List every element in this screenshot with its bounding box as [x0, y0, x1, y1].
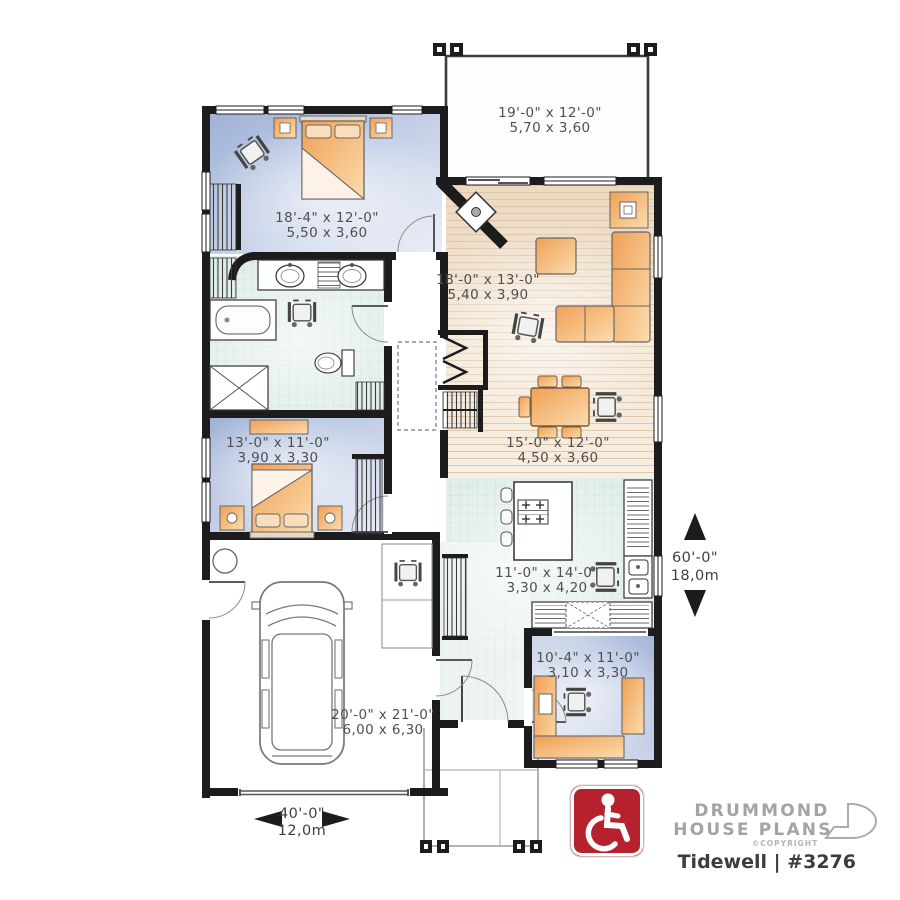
landing-steps [382, 544, 432, 648]
patio-columns [433, 43, 657, 56]
patio-dims-metric: 5,70 x 3,60 [509, 120, 590, 136]
office-dims-metric: 3,10 x 3,30 [547, 665, 628, 681]
master-bedroom-dims-metric: 5,50 x 3,60 [286, 225, 367, 241]
depth-ft-label: 60'-0" [672, 550, 718, 566]
brand-copyright: ©COPYRIGHT [752, 839, 818, 848]
master-closet-icon [210, 184, 236, 250]
floor-plan: 18'-4" x 12'-0" 5,50 x 3,60 [0, 0, 900, 900]
bedroom2-dims-imperial: 13'-0" x 11'-0" [226, 435, 330, 451]
master-bedroom-dims-imperial: 18'-4" x 12'-0" [275, 210, 379, 226]
sink-icon [338, 265, 366, 287]
patio-dims-imperial: 19'-0" x 12'-0" [498, 105, 602, 121]
bedroom2-dims-metric: 3,90 x 3,30 [237, 450, 318, 466]
water-heater-icon [213, 549, 237, 573]
floor-plan-canvas: 18'-4" x 12'-0" 5,50 x 3,60 [0, 0, 900, 900]
arrow-up-icon [684, 513, 706, 540]
bed-icon [300, 116, 366, 199]
plan-name-label: Tidewell | #3276 [678, 851, 856, 873]
dining-dims-metric: 4,50 x 3,60 [517, 450, 598, 466]
kitchen-dims-metric: 3,30 x 4,20 [506, 580, 587, 596]
linen-cabinet-icon [210, 258, 236, 298]
accessibility-badge [570, 785, 644, 857]
van-icon [252, 582, 352, 764]
depth-m-label: 18,0m [671, 568, 719, 584]
office-dims-imperial: 10'-4" x 11'-0" [536, 650, 640, 666]
kitchen-dims-imperial: 11'-0" x 14'-0" [495, 565, 599, 581]
bed-icon [250, 464, 314, 538]
stool-icon [501, 488, 512, 502]
shower-icon [210, 366, 268, 410]
stool-icon [501, 510, 512, 524]
entry-closet-icon [444, 558, 466, 636]
brand-line2: HOUSE PLANS [673, 820, 832, 840]
depth-dimension: 60'-0" 18,0m [671, 513, 719, 617]
garage-dims-imperial: 20'-0" x 21'-0" [331, 707, 435, 723]
closet-icon [356, 459, 382, 534]
garage-dims-metric: 6,00 x 6,30 [342, 722, 423, 738]
drummond-d-logo-icon [826, 804, 876, 838]
width-ft-label: 40'-0" [279, 806, 325, 822]
coffee-table-icon [536, 238, 576, 274]
kitchen-sink-icon [624, 556, 652, 598]
living-dims-imperial: 18'-0" x 13'-0" [436, 272, 540, 288]
bookshelf-icon [622, 678, 644, 734]
linen-shelves-icon [356, 382, 384, 410]
dresser-icon [250, 420, 308, 434]
sink-icon [276, 265, 304, 287]
arrow-down-icon [684, 590, 706, 617]
branding: DRUMMOND HOUSE PLANS ©COPYRIGHT Tidewell… [673, 801, 876, 873]
width-dimension: 40'-0" 12,0m [254, 806, 350, 839]
stool-icon [501, 532, 512, 546]
dining-dims-imperial: 15'-0" x 12'-0" [506, 435, 610, 451]
width-m-label: 12,0m [278, 823, 326, 839]
bathtub-icon [210, 300, 276, 340]
dishwasher-icon [566, 602, 610, 628]
brand-line1: DRUMMOND [694, 801, 829, 821]
living-dims-metric: 5,40 x 3,90 [447, 287, 528, 303]
